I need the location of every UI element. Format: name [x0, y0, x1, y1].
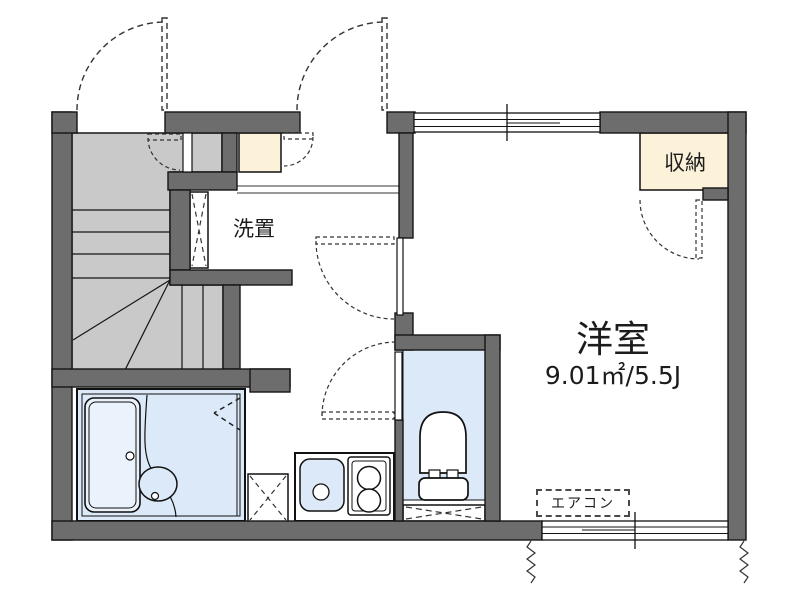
wall-top-1	[52, 112, 77, 133]
wall-stair-d	[170, 270, 292, 285]
main-room-name: 洋室	[503, 314, 723, 358]
kitchen-counter	[295, 453, 394, 521]
pipe-space-upper	[190, 192, 208, 268]
gas-stove	[348, 457, 390, 515]
washer-storage-label: 洗置	[216, 195, 292, 261]
wall-right	[728, 112, 746, 540]
wall-top-3	[387, 112, 415, 133]
bathtub	[85, 398, 140, 512]
wall-top-2	[165, 112, 300, 133]
bathroom-unit	[77, 389, 245, 521]
wall-stair-a	[222, 133, 237, 172]
wall-stair-b	[168, 172, 237, 190]
wall-toilet-right	[485, 335, 500, 521]
wall-stair-e	[223, 285, 240, 369]
pipe-space-lower	[248, 474, 288, 522]
wall-top-4	[600, 112, 746, 133]
main-room-area: 9.01㎡/5.5J	[503, 358, 723, 390]
shoe-cabinet	[239, 133, 281, 172]
wall-toilet-left	[395, 420, 403, 521]
air-conditioner-label: エアコン	[536, 489, 630, 517]
washbasin	[139, 467, 177, 501]
kitchen-sink	[300, 459, 344, 511]
wall-hall-upper	[399, 133, 413, 238]
toilet-room	[403, 350, 485, 500]
toilet-vent-strip	[403, 505, 485, 521]
wall-bath-jamb	[250, 369, 290, 392]
wall-toilet-top	[395, 335, 500, 350]
floor-plan-drawing	[0, 0, 800, 608]
wall-left	[52, 112, 72, 540]
wall-bottom	[52, 521, 542, 540]
wall-stair-c	[170, 190, 190, 270]
floor-plan: 洗置 収納 洋室 9.01㎡/5.5J エアコン	[0, 0, 800, 608]
toilet-fixture	[419, 412, 468, 500]
closet-label: 収納	[640, 133, 730, 190]
